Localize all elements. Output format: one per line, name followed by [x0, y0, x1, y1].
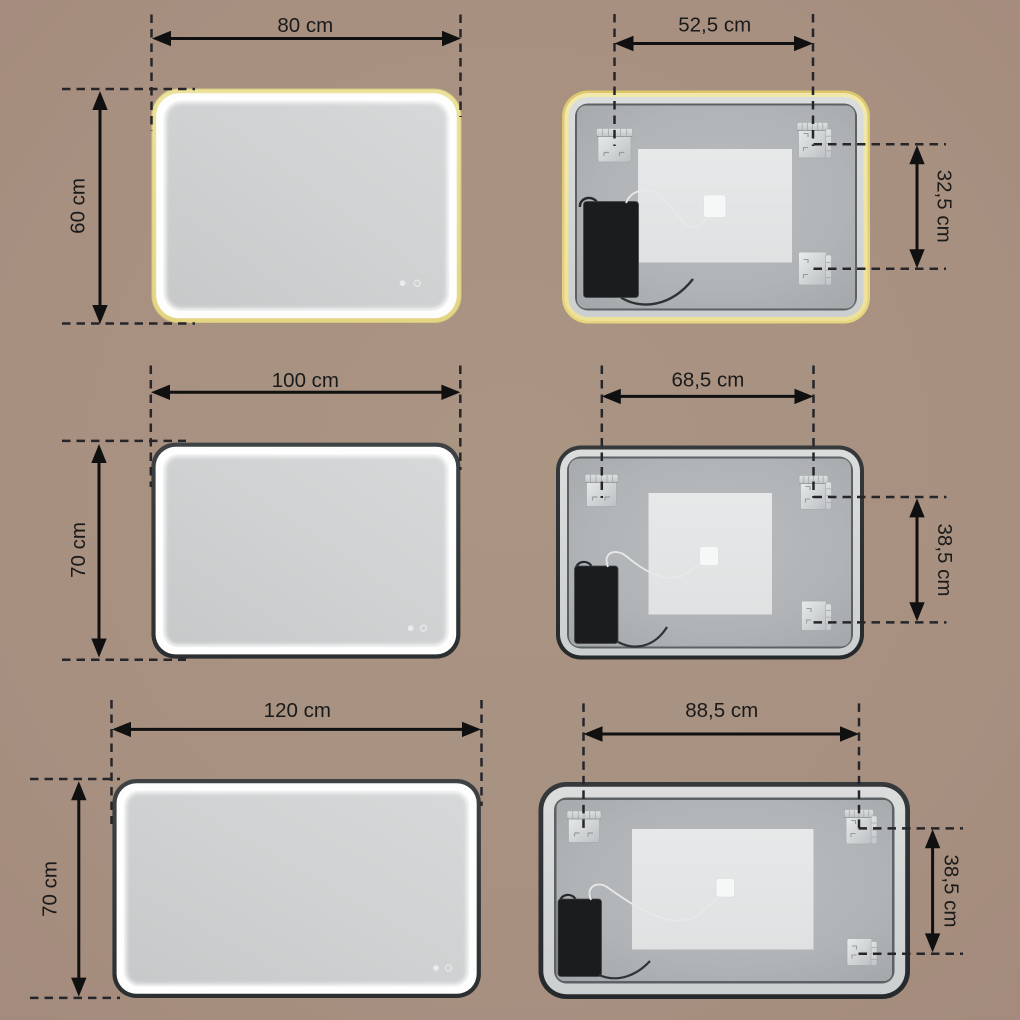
svg-text:60 cm: 60 cm: [67, 178, 90, 234]
svg-text:38,5 cm: 38,5 cm: [933, 524, 956, 597]
svg-text:120 cm: 120 cm: [264, 699, 331, 722]
svg-text:68,5 cm: 68,5 cm: [671, 369, 744, 392]
svg-text:70 cm: 70 cm: [38, 861, 61, 917]
svg-text:38,5 cm: 38,5 cm: [939, 855, 962, 928]
svg-text:88,5 cm: 88,5 cm: [685, 699, 758, 722]
svg-text:80 cm: 80 cm: [277, 14, 333, 37]
svg-text:32,5 cm: 32,5 cm: [933, 170, 956, 243]
svg-text:100 cm: 100 cm: [272, 369, 339, 392]
svg-text:70 cm: 70 cm: [67, 522, 90, 578]
svg-text:52,5 cm: 52,5 cm: [678, 14, 751, 37]
